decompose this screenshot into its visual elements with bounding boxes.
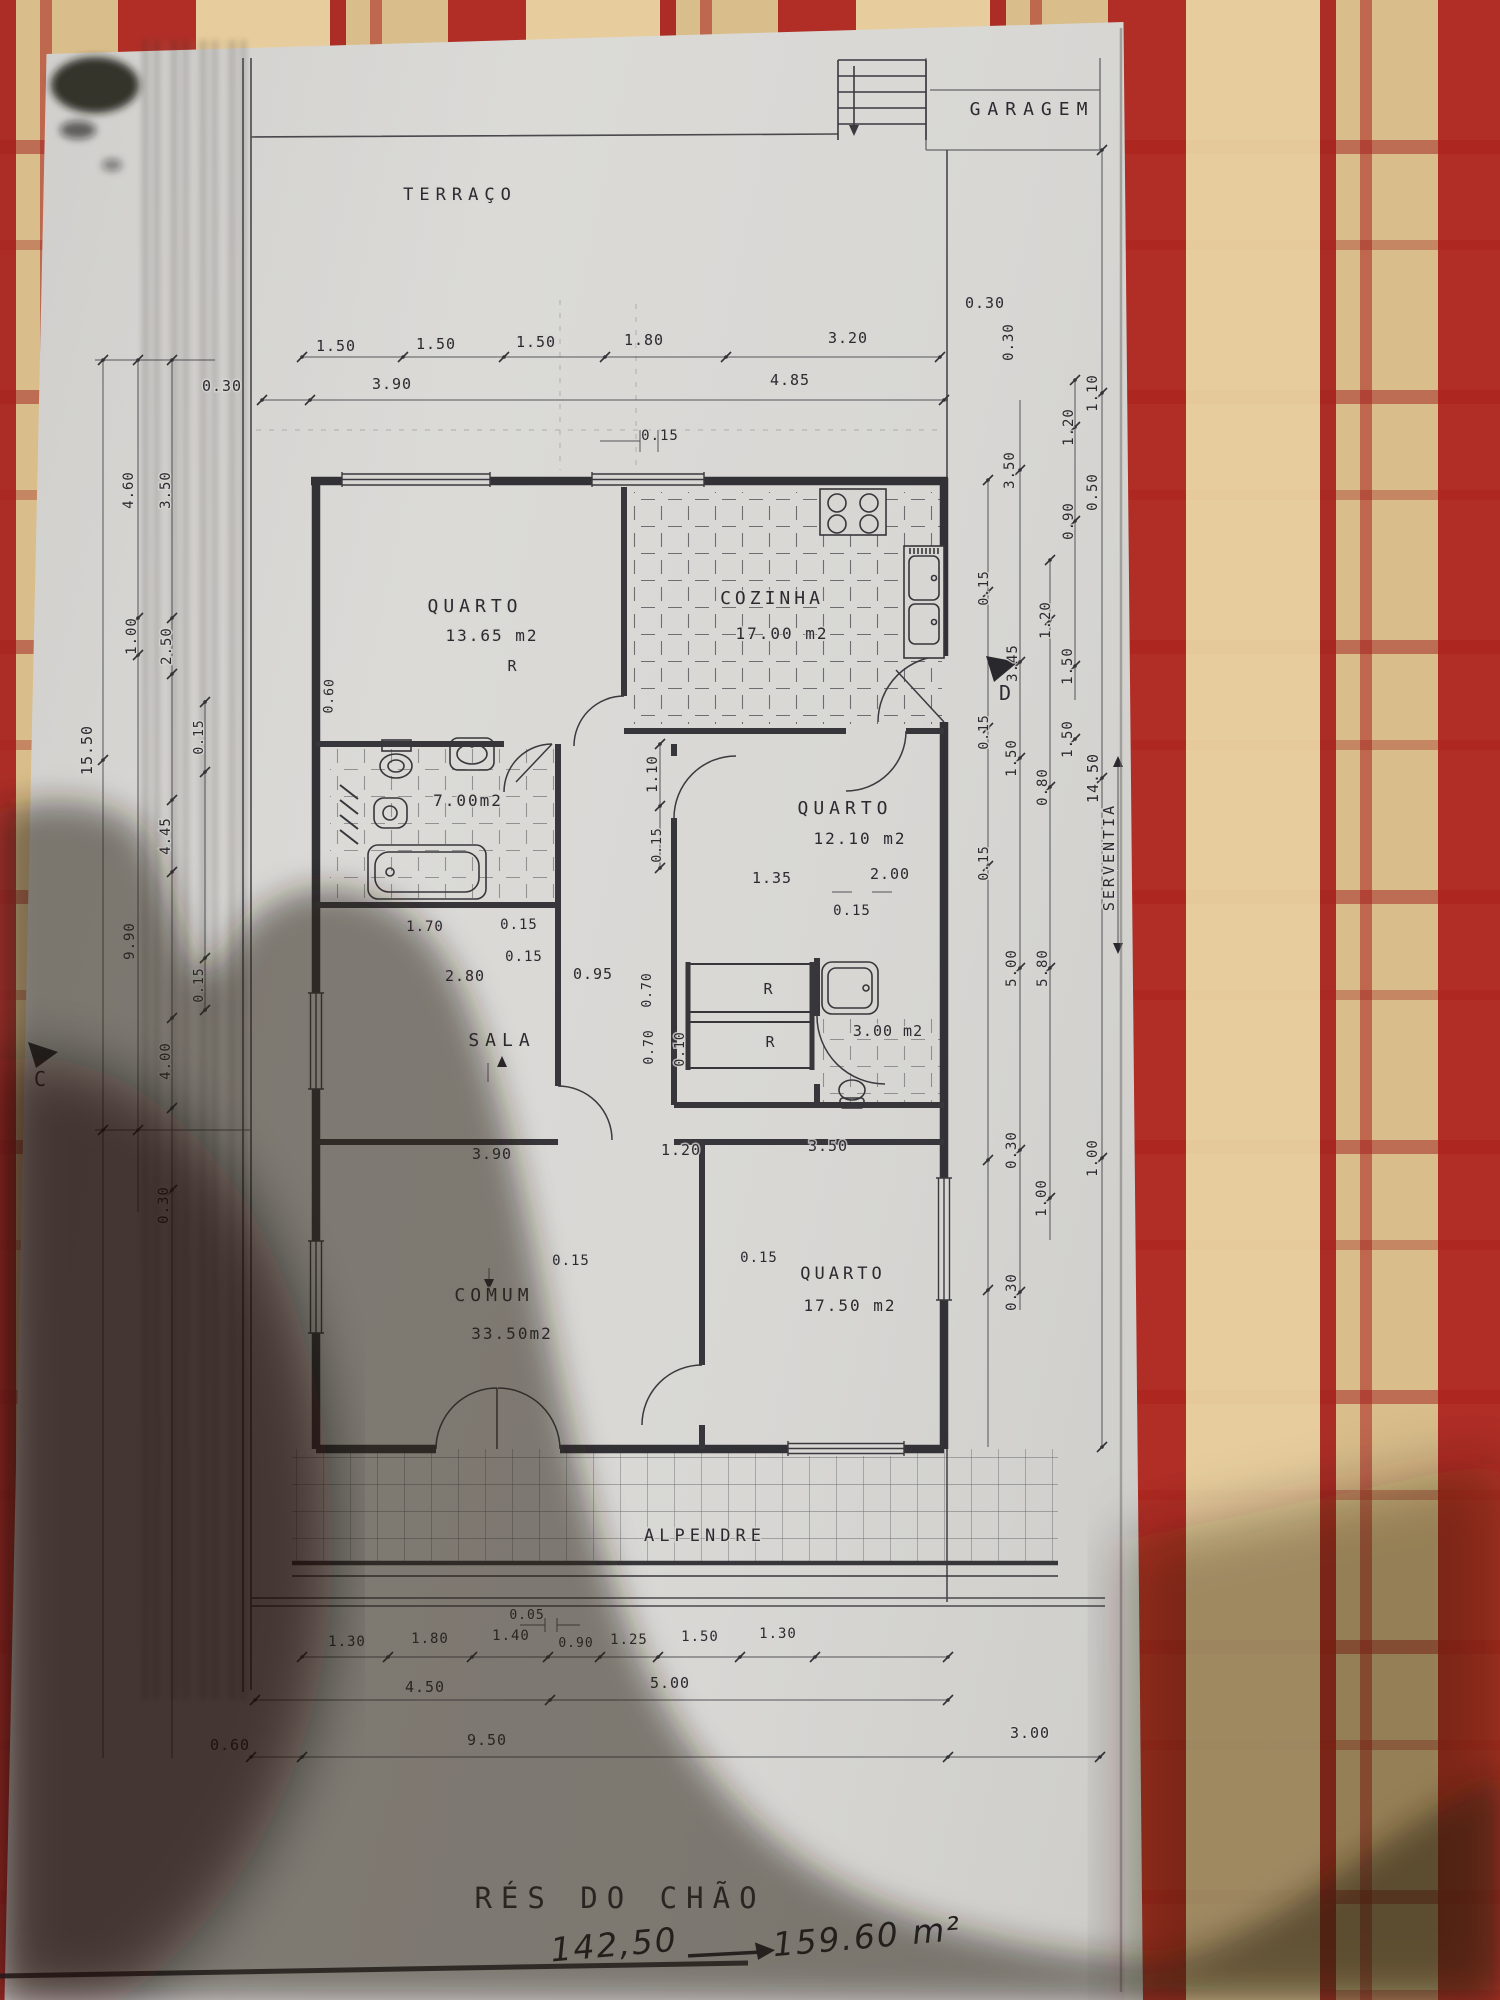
label-dim-390: 3.90 xyxy=(372,375,412,393)
label-dim-140: 1.40 xyxy=(492,1628,530,1644)
window-quarto1 xyxy=(342,472,490,487)
label-dim-090b: 0.90 xyxy=(558,1636,593,1651)
label-dimR-100a: 1.00 xyxy=(1085,1139,1101,1177)
label-terraco-label: TERRAÇO xyxy=(403,185,517,205)
label-marker-d: D xyxy=(999,681,1011,705)
label-sala-name: SALA xyxy=(468,1030,535,1051)
comum-french-doors xyxy=(436,1388,560,1449)
window-sala-west xyxy=(308,993,324,1089)
label-closet-r3: R xyxy=(765,1033,775,1051)
label-quarto2-area: 12.10 m2 xyxy=(813,829,906,848)
label-dim-095: 0.95 xyxy=(573,965,613,983)
label-dimR-090: 0.90 xyxy=(1061,502,1077,540)
label-dimR-1450: 14.50 xyxy=(1084,753,1102,803)
label-dim-180: 1.80 xyxy=(624,331,664,349)
label-wc1-area: 7.00m2 xyxy=(433,791,503,810)
label-dim-015a: 0.15 xyxy=(500,917,538,933)
label-hw-after: 159.60 m² xyxy=(771,1909,963,1964)
label-closet-r2: R xyxy=(763,980,773,998)
label-dim-015c: 0.15 xyxy=(833,903,871,919)
plan-text-labels: GARAGEMTERRAÇO1.501.501.501.803.200.303.… xyxy=(34,99,1118,1970)
quarto2-door xyxy=(674,756,736,818)
label-dim-015e: 0.15 xyxy=(740,1250,778,1266)
label-comum-name: COMUM xyxy=(454,1285,533,1306)
label-marker-c: C xyxy=(34,1067,46,1091)
label-dimR-030a: 0.30 xyxy=(1001,323,1017,361)
label-quarto3-area: 17.50 m2 xyxy=(803,1296,896,1315)
label-cozinha-name: COZINHA xyxy=(720,588,824,609)
label-dim-125: 1.25 xyxy=(610,1632,648,1648)
label-dimR-120b: 1.20 xyxy=(1038,601,1054,639)
label-dim-110v: 1.10 xyxy=(645,755,661,793)
label-quarto3-name: QUARTO xyxy=(800,1264,885,1284)
hall-door-left xyxy=(574,696,624,746)
label-dimR-100b: 1.00 xyxy=(1034,1179,1050,1217)
label-dim-320: 3.20 xyxy=(828,329,868,347)
bathroom1-tile-floor xyxy=(330,746,554,898)
label-dim-350b: 3.50 xyxy=(808,1137,848,1155)
stairs xyxy=(838,60,926,140)
label-dim-015d: 0.15 xyxy=(552,1253,590,1269)
label-dimL-1550: 15.50 xyxy=(78,725,96,775)
label-dim-150d: 1.50 xyxy=(681,1629,719,1645)
label-dimR-120a: 1.20 xyxy=(1061,408,1077,446)
label-dim-130a: 1.30 xyxy=(328,1634,366,1650)
label-dimR-030c: 0.30 xyxy=(1004,1273,1020,1311)
window-quarto3-south xyxy=(788,1441,904,1456)
label-closet-r1: R xyxy=(507,657,517,675)
label-dim-060: 0.60 xyxy=(210,1736,250,1754)
label-serventia-label: SERVENTIA xyxy=(1100,803,1118,911)
label-dimR-015a: 0.15 xyxy=(977,570,992,605)
label-garagem-label: GARAGEM xyxy=(970,99,1095,120)
label-dimR-015c: 0.15 xyxy=(977,845,992,880)
window-comum-west xyxy=(308,1241,324,1333)
label-dimL-350: 3.50 xyxy=(158,471,174,509)
label-dim-180b: 1.80 xyxy=(411,1631,449,1647)
label-dimL-250: 2.50 xyxy=(159,627,175,665)
label-dimL-100: 1.00 xyxy=(124,617,140,655)
label-dim-015b: 0.15 xyxy=(505,949,543,965)
label-cozinha-area: 17.00 m2 xyxy=(735,624,828,643)
label-dimR-580: 5.80 xyxy=(1035,949,1051,987)
label-dim-485: 4.85 xyxy=(770,371,810,389)
label-hw-before: 142,50 xyxy=(549,1920,679,1970)
stairs-arrow-icon xyxy=(849,125,859,136)
label-dimR-500: 5.00 xyxy=(1004,949,1020,987)
label-dimL-030: 0.30 xyxy=(156,1186,172,1224)
label-dimL-460: 4.60 xyxy=(121,471,137,509)
photo-of-floor-plan: GARAGEMTERRAÇO1.501.501.501.803.200.303.… xyxy=(0,0,1500,2000)
quarto3-door xyxy=(642,1365,702,1425)
terrace-guide-lines xyxy=(256,300,940,470)
label-wc2-area: 3.00 m2 xyxy=(853,1022,923,1040)
label-dim-030-right-top: 0.30 xyxy=(965,294,1005,312)
label-dim-450: 4.50 xyxy=(405,1678,445,1696)
section-marker-c-icon xyxy=(28,1042,58,1068)
label-dim-150a: 1.50 xyxy=(316,337,356,355)
label-dim-500: 5.00 xyxy=(650,1674,690,1692)
label-dimR-345: 3.45 xyxy=(1005,644,1021,682)
label-dim-150c: 1.50 xyxy=(516,333,556,351)
label-dim-390b: 3.90 xyxy=(472,1145,512,1163)
label-dimR-015b: 0.15 xyxy=(977,714,992,749)
label-dim-015v: 0.15 xyxy=(650,827,665,862)
label-dimL-060: 0.60 xyxy=(321,678,337,714)
label-dimL-015a: 0.15 xyxy=(192,719,207,754)
label-dimL-990: 9.90 xyxy=(122,922,138,960)
kitchen-hall-door xyxy=(846,731,906,791)
sheet-edge-line xyxy=(0,1963,748,1976)
label-dimR-110: 1.10 xyxy=(1085,374,1101,412)
window-cozinha xyxy=(592,472,704,487)
label-dim-015-top: 0.15 xyxy=(641,428,679,444)
label-dim-200: 2.00 xyxy=(870,865,910,883)
label-dim-170: 1.70 xyxy=(406,919,444,935)
label-dim-280: 2.80 xyxy=(445,967,485,985)
label-alpendre-name: ALPENDRE xyxy=(644,1526,766,1546)
label-floor-title: RÉS DO CHÃO xyxy=(474,1881,765,1915)
sala-door xyxy=(558,1086,612,1140)
label-quarto1-area: 13.65 m2 xyxy=(445,626,538,645)
label-quarto2-name: QUARTO xyxy=(797,798,892,819)
label-comum-area: 33.50m2 xyxy=(471,1324,552,1343)
floor-plan-drawing: GARAGEMTERRAÇO1.501.501.501.803.200.303.… xyxy=(0,0,1500,2000)
label-dimR-030b: 0.30 xyxy=(1004,1131,1020,1169)
window-quarto3-east xyxy=(936,1178,952,1300)
label-dim-070a: 0.70 xyxy=(640,972,655,1007)
label-dim-070b: 0.70 xyxy=(642,1029,657,1064)
label-quarto1-name: QUARTO xyxy=(427,596,522,617)
label-dimR-350: 3.50 xyxy=(1002,451,1018,489)
label-dim-010: 0.10 xyxy=(673,1031,688,1066)
label-dimR-050: 0.50 xyxy=(1085,473,1101,511)
stove-icon xyxy=(820,489,886,535)
label-dim-130b: 1.30 xyxy=(759,1626,797,1642)
label-dimR-150b: 1.50 xyxy=(1004,739,1020,777)
label-dim-030-left: 0.30 xyxy=(202,377,242,395)
label-dimL-400: 4.00 xyxy=(158,1042,174,1080)
sala-arrow-icon xyxy=(497,1056,507,1067)
handwriting-arrow xyxy=(688,1942,774,1959)
label-dim-300: 3.00 xyxy=(1010,1724,1050,1742)
label-dim-950: 9.50 xyxy=(467,1731,507,1749)
label-dimL-445: 4.45 xyxy=(158,817,174,855)
label-dim-120b: 1.20 xyxy=(661,1141,701,1159)
label-dim-150b: 1.50 xyxy=(416,335,456,353)
closets xyxy=(688,962,812,1070)
label-dimL-015b: 0.15 xyxy=(192,967,207,1002)
label-dimR-150c: 1.50 xyxy=(1060,720,1076,758)
smudge-marks xyxy=(51,57,139,171)
label-dimR-150a: 1.50 xyxy=(1060,647,1076,685)
label-dim-135: 1.35 xyxy=(752,869,792,887)
label-dimR-080: 0.80 xyxy=(1035,768,1051,806)
label-dim-005: 0.05 xyxy=(509,1608,544,1623)
